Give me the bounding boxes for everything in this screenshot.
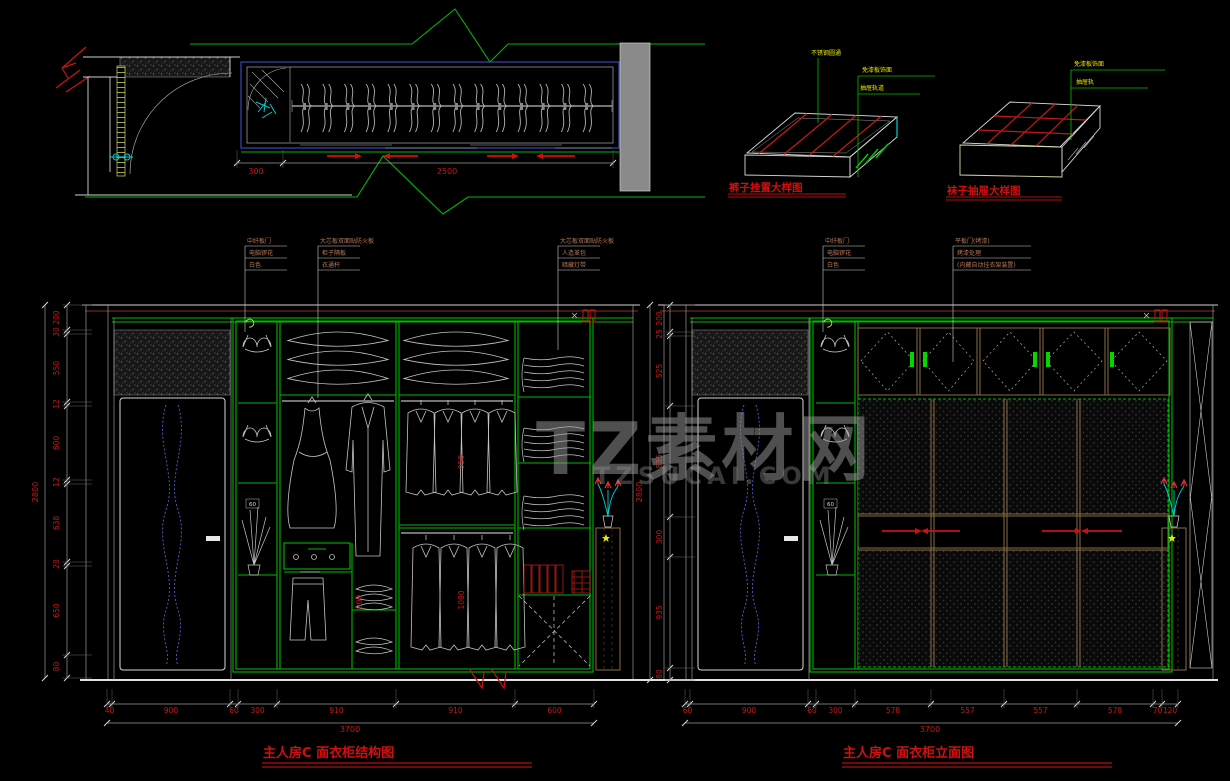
red-arrow-head [921, 528, 928, 534]
hanger-clip [477, 103, 480, 110]
callout-row: 电脑锣花 [249, 249, 273, 257]
dim-value: 935 [655, 605, 664, 620]
folded-stack [288, 332, 388, 346]
door-diamond [1046, 332, 1102, 391]
dim-value: 910 [329, 706, 344, 715]
hanger-clip [585, 103, 588, 110]
hanger-clip [498, 103, 501, 110]
callout-row: 白色 [249, 261, 261, 269]
sweater-side [522, 358, 524, 392]
dim-value: 910 [448, 706, 463, 715]
door-handle-right [784, 536, 798, 541]
dim-overall-value: 2800 [31, 482, 40, 502]
dim-value: 650 [52, 603, 61, 618]
mirror-side-panel [1190, 322, 1212, 668]
sweater-lines [524, 502, 584, 505]
dim-value: 300 [828, 706, 843, 715]
hanger-glyph [437, 84, 441, 132]
hanger-glyph [589, 84, 593, 132]
dim-value: 600 [547, 706, 562, 715]
wall-column [620, 43, 650, 191]
left-title-underline [262, 763, 532, 767]
dim-value: 30 [52, 327, 61, 337]
dim-overall-value: 3700 [340, 725, 360, 734]
folded-stack [356, 647, 392, 654]
callout-row: 白色 [827, 261, 839, 269]
dim-value: 60 [807, 706, 817, 715]
folded-stack [404, 351, 508, 365]
dim-value: 60 [229, 706, 239, 715]
detail-label: 抽屉轨道 [860, 84, 884, 92]
vase [1169, 516, 1179, 527]
red-arrow-head [536, 153, 543, 159]
plant-plan [256, 98, 276, 118]
inner-dim-900: 900 [355, 595, 364, 610]
star-icon [602, 534, 610, 542]
sliding-direction-arrows [327, 153, 575, 159]
hanging-rods [282, 401, 513, 533]
shoe-boxes [524, 565, 590, 593]
watermark-subtitle: TZSUCAI.COM [594, 462, 836, 490]
hanger-glyph [546, 84, 550, 132]
callout-row: 烤漆处理 [957, 249, 981, 257]
callout-header: 大芯板双面贴防火板 [560, 237, 614, 245]
ceiling-lamp-right [1144, 310, 1167, 322]
right-title-underline [842, 763, 1112, 767]
detail-label: 不锈钢圆通 [811, 49, 841, 57]
detail-b-title: 袜子抽屉大样图 [946, 184, 1021, 197]
sliding-door-lower [858, 550, 1168, 667]
hanger-glyph [416, 84, 420, 132]
detail-b-top [963, 102, 1100, 147]
hangers [301, 84, 593, 132]
tag-right: 60 [827, 502, 834, 508]
dim-value: 557 [1033, 706, 1048, 715]
sliding-arrows [882, 528, 1122, 534]
cabinet-frame-inner [236, 321, 590, 669]
sweater-lines [524, 364, 584, 367]
plant-sketch [242, 507, 270, 575]
wardrobe-plan-inner [247, 67, 613, 143]
top-cabinet-row [858, 328, 1170, 395]
hanger-glyph [502, 84, 506, 132]
dim-value: 80 [52, 662, 61, 672]
suit-sketch [495, 535, 525, 650]
side-column-shelves-r [816, 321, 858, 669]
dim-value: 525 [655, 364, 664, 379]
red-arrow-head [512, 153, 519, 159]
pedestal-lines [604, 528, 612, 670]
dim-overall-value: 3700 [920, 725, 940, 734]
dim-value: 578 [1108, 706, 1123, 715]
hanger-glyph [394, 84, 398, 132]
sliding-door-upper [858, 399, 1168, 514]
folded-stack [356, 638, 392, 645]
red-arrow-head [1075, 528, 1082, 534]
callout-header: 中纤板门 [825, 237, 849, 245]
dim-value: 80 [655, 669, 664, 679]
sweater-lines [524, 378, 584, 381]
hanger-clip [390, 103, 393, 110]
cabinet-frame-outer [233, 318, 593, 672]
hanger-clip [455, 103, 458, 110]
wall-hatch-left [114, 330, 230, 395]
sweater-lines [524, 371, 584, 374]
hanger-glyph [481, 84, 485, 132]
suit-sketch [460, 400, 490, 495]
dim-value: 25 [655, 329, 664, 339]
sweater-lines [524, 516, 584, 519]
detail-label: 免漆板饰面 [862, 66, 892, 74]
cad-drawing-canvas: 300 2500 裤子挂置大样图 袜子抽屉大样图 不锈钢圆通免漆板饰面抽屉轨道免… [0, 0, 1230, 781]
red-arrow-head [915, 528, 922, 534]
dim-value: 300 [655, 530, 664, 545]
red-arrow-head [1081, 528, 1088, 534]
dim-value: 120 [1163, 706, 1178, 715]
hanger-glyph [350, 84, 354, 132]
callout-header: 大芯板双面贴防火板 [320, 237, 374, 245]
hanger-clip [368, 103, 371, 110]
dim-value: 70 [1153, 706, 1163, 715]
callout-row: (内藏自动挂衣架装置) [957, 261, 1016, 269]
sock-grid [978, 103, 1086, 146]
suit-sketch [433, 400, 463, 495]
bra-sketch [243, 425, 271, 442]
callout-header: 平板门(烤漆) [955, 237, 990, 245]
dim-value: 550 [52, 361, 61, 376]
door-diamond [861, 332, 914, 391]
callout-header: 中纤板门 [247, 237, 271, 245]
plan-dim-300: 300 [248, 167, 263, 176]
callout-row: 衣通杆 [322, 261, 340, 269]
detail-label: 抽屉轨 [1076, 78, 1094, 86]
suit-sketch [406, 400, 436, 495]
top-cabinet-dividers [917, 328, 1108, 395]
hanger-clip [325, 103, 328, 110]
right-elevation: 60 主人房C 面衣柜立面图 [692, 310, 1212, 767]
suit-sketch [487, 400, 517, 495]
sweater-lines [524, 523, 584, 526]
hanger-clip [542, 103, 545, 110]
dim-value: 638 [52, 516, 61, 531]
sweater-lines [524, 385, 584, 388]
door-swing-arc [130, 73, 232, 174]
folded-stack [288, 351, 388, 365]
detail-b-underline [946, 197, 1062, 200]
plan-view: 300 2500 [56, 9, 705, 214]
left-elevation-title: 主人房C 面衣柜结构图 [263, 745, 394, 761]
door-diamond [1111, 332, 1167, 391]
drawer-knobs [294, 555, 335, 560]
folded-stack [356, 585, 392, 592]
door-panel-left [120, 398, 225, 670]
callout-row: 电脑锣花 [827, 249, 851, 257]
red-arrow-head [355, 153, 362, 159]
dim-value: 60 [683, 706, 693, 715]
pedestal [596, 528, 620, 670]
wardrobe-plan-outline [241, 62, 619, 148]
revision-mark [56, 47, 90, 92]
dim-value: 200 [52, 310, 61, 325]
dim-value: 600 [52, 436, 61, 451]
inner-dim-1080: 1080 [457, 590, 466, 609]
corner-shelf [248, 67, 290, 142]
hanger-clip [303, 103, 306, 110]
inner-dim-950: 950 [457, 455, 466, 470]
swirl-mark-right [824, 319, 832, 327]
right-elevation-title: 主人房C 面衣柜立面图 [843, 745, 974, 761]
hanger-glyph [524, 84, 528, 132]
dim-value: 20 [52, 559, 61, 569]
door-handle-left [206, 536, 220, 541]
wall-hatch-plan [120, 57, 230, 77]
dim-value: 200 [655, 311, 664, 326]
empty-bay-cross [519, 596, 590, 666]
plan-dim-2500: 2500 [437, 167, 457, 176]
dim-value: 12 [52, 399, 61, 409]
red-arrow-head [383, 153, 390, 159]
ceiling-lamp-left [572, 310, 595, 322]
hanger-glyph [459, 84, 463, 132]
coat-sketch [346, 394, 390, 556]
hanger-clip [433, 103, 436, 110]
wall-lines-plan [75, 57, 352, 195]
hanger-clip [346, 103, 349, 110]
garment-sketches [288, 332, 525, 654]
shorts-sketch [290, 572, 326, 640]
sweater-lines [524, 509, 584, 512]
dim-value: 300 [250, 706, 265, 715]
sweater-lines [524, 357, 584, 360]
vase [603, 516, 613, 527]
mid-band [858, 516, 1168, 548]
detail-trouser-rack: 裤子挂置大样图 [728, 113, 897, 197]
sweater-side [522, 496, 524, 530]
callout-row: 人造革包 [562, 249, 586, 257]
dim-value: 578 [886, 706, 901, 715]
plan-dim-ext [237, 150, 613, 168]
dim-value: 900 [164, 706, 179, 715]
detail-sock-drawer: 袜子抽屉大样图 [946, 102, 1100, 200]
door-wavy-pattern-left [163, 405, 182, 666]
hanger-clip [563, 103, 566, 110]
detail-label: 免漆板饰面 [1074, 60, 1104, 68]
dim-value: 40 [105, 706, 115, 715]
cabinet-door-diamonds [861, 332, 1167, 391]
hanger-clip [520, 103, 523, 110]
pedestal-lines [1170, 528, 1178, 670]
hanger-glyph [372, 84, 376, 132]
hanger-glyph [307, 84, 311, 132]
hanger-glyph [567, 84, 571, 132]
hanger-glyph [329, 84, 333, 132]
bra-sketch [821, 335, 849, 352]
dim-value: 900 [742, 706, 757, 715]
detail-a-front [745, 155, 850, 177]
suit-sketch [467, 535, 497, 650]
sweater-side [522, 428, 524, 462]
dim-value: 557 [960, 706, 975, 715]
detail-a-underline [728, 194, 846, 197]
hanger-clip [412, 103, 415, 110]
swirl-mark-left [246, 319, 254, 327]
folded-stack [404, 332, 508, 346]
cabinet-handles [910, 352, 1114, 367]
folded-stack [404, 370, 508, 384]
dress-sketch [288, 397, 336, 528]
tag-left: 60 [249, 502, 256, 508]
plant-sketch [820, 507, 848, 575]
door-diamond [923, 332, 974, 391]
door-diamond [983, 332, 1037, 391]
sweater-lines [524, 495, 584, 498]
folded-stack [288, 370, 388, 384]
flower-red [1181, 480, 1187, 486]
suit-sketch [411, 535, 441, 650]
callout-row: 柜子隔板 [322, 249, 346, 257]
detail-a-top [747, 113, 897, 157]
callout-row: 暗藏灯带 [562, 261, 586, 269]
detail-b-front [960, 145, 1062, 177]
wall-hatch-right [692, 330, 808, 395]
bra-sketch [243, 335, 271, 352]
dim-value: 12 [52, 477, 61, 487]
detail-a-title: 裤子挂置大样图 [729, 181, 803, 194]
